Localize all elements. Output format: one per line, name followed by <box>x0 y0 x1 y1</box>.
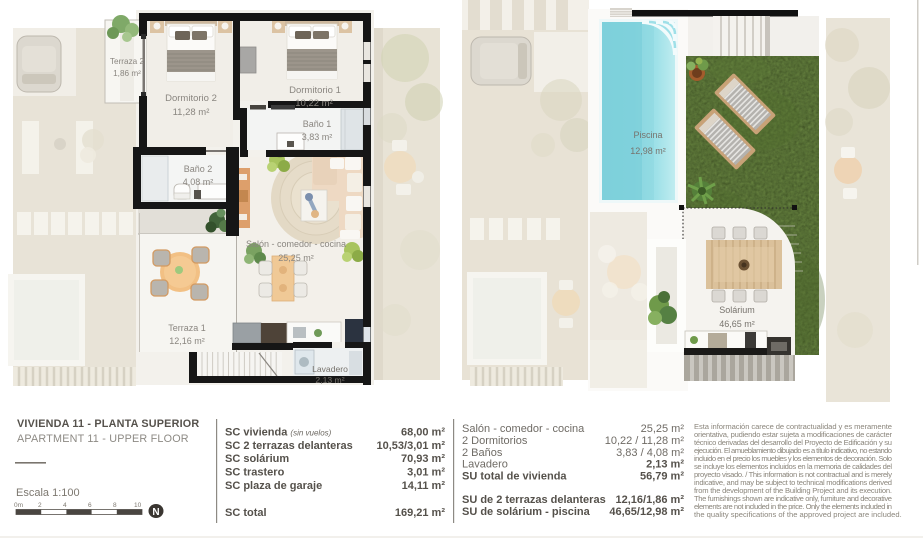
svg-text:4: 4 <box>63 502 67 509</box>
svg-text:VIVIENDA 11 - PLANTA SUPERIOR: VIVIENDA 11 - PLANTA SUPERIOR <box>17 418 199 430</box>
svg-text:SC total: SC total <box>225 507 267 519</box>
svg-text:11,28 m²: 11,28 m² <box>173 107 210 118</box>
svg-text:3,83 m²: 3,83 m² <box>302 132 333 142</box>
svg-text:70,93 m²: 70,93 m² <box>401 453 445 465</box>
svg-text:169,21 m²: 169,21 m² <box>395 507 445 519</box>
svg-text:10,22 m²: 10,22 m² <box>295 98 333 109</box>
svg-text:0m: 0m <box>14 502 23 509</box>
svg-text:SU de solárium - piscina: SU de solárium - piscina <box>462 506 591 518</box>
svg-text:Salón - comedor - cocina: Salón - comedor - cocina <box>246 239 346 249</box>
svg-text:12,16 m²: 12,16 m² <box>169 336 205 346</box>
svg-text:1,86 m²: 1,86 m² <box>113 69 141 78</box>
svg-text:Baño 1: Baño 1 <box>303 119 332 129</box>
svg-text:56,79 m²: 56,79 m² <box>640 471 684 483</box>
svg-text:25,25 m²: 25,25 m² <box>278 253 314 263</box>
svg-text:SC vivienda (sin vuelos): SC vivienda (sin vuelos) <box>225 427 332 439</box>
svg-text:3,83 / 4,08 m²: 3,83 / 4,08 m² <box>616 447 684 459</box>
svg-text:14,11 m²: 14,11 m² <box>402 480 446 492</box>
svg-text:10,53/3,01 m²: 10,53/3,01 m² <box>377 440 446 452</box>
svg-text:2: 2 <box>38 502 42 509</box>
svg-text:Piscina: Piscina <box>633 130 662 140</box>
svg-text:Solárium: Solárium <box>719 305 755 315</box>
svg-text:N: N <box>152 507 159 518</box>
svg-text:Dormitorio 2: Dormitorio 2 <box>165 93 217 104</box>
svg-text:2 Baños: 2 Baños <box>462 447 503 459</box>
svg-text:Dormitorio 1: Dormitorio 1 <box>289 85 341 96</box>
svg-text:4,08 m²: 4,08 m² <box>183 177 214 187</box>
svg-text:Lavadero: Lavadero <box>312 364 348 374</box>
svg-text:Salón - comedor - cocina: Salón - comedor - cocina <box>462 423 585 435</box>
svg-text:SC trastero: SC trastero <box>225 467 285 479</box>
svg-text:6: 6 <box>88 502 92 509</box>
svg-text:SU total de vivienda: SU total de vivienda <box>462 471 567 483</box>
svg-text:SC plaza de garaje: SC plaza de garaje <box>225 480 322 492</box>
svg-text:Baño 2: Baño 2 <box>184 164 213 174</box>
svg-text:10,22 / 11,28 m²: 10,22 / 11,28 m² <box>605 435 685 447</box>
svg-text:SC 2 terrazas delanteras: SC 2 terrazas delanteras <box>225 440 353 452</box>
svg-text:46,65/12,98 m²: 46,65/12,98 m² <box>609 506 684 518</box>
svg-text:Escala 1:100: Escala 1:100 <box>16 487 80 499</box>
svg-text:25,25 m²: 25,25 m² <box>641 423 685 435</box>
svg-text:46,65 m²: 46,65 m² <box>719 319 755 329</box>
svg-text:10: 10 <box>134 502 142 509</box>
svg-text:2,13 m²: 2,13 m² <box>646 459 684 471</box>
svg-text:2,13 m²: 2,13 m² <box>315 375 344 385</box>
svg-text:3,01 m²: 3,01 m² <box>407 467 445 479</box>
svg-text:12,98 m²: 12,98 m² <box>630 146 666 156</box>
svg-text:8: 8 <box>113 502 117 509</box>
svg-text:SC solárium: SC solárium <box>225 453 289 465</box>
svg-text:12,16/1,86 m²: 12,16/1,86 m² <box>616 494 685 506</box>
svg-text:SU de 2 terrazas delanteras: SU de 2 terrazas delanteras <box>462 494 606 506</box>
svg-text:2 Dormitorios: 2 Dormitorios <box>462 435 528 447</box>
svg-text:APARTMENT 11 - UPPER FLOOR: APARTMENT 11 - UPPER FLOOR <box>17 433 189 445</box>
svg-text:Terraza 2: Terraza 2 <box>110 57 145 66</box>
svg-text:Terraza 1: Terraza 1 <box>168 323 206 333</box>
svg-text:Lavadero: Lavadero <box>462 459 508 471</box>
svg-text:the quality specifications of: the quality specifications of the approv… <box>694 510 902 519</box>
svg-text:68,00 m²: 68,00 m² <box>401 427 445 439</box>
